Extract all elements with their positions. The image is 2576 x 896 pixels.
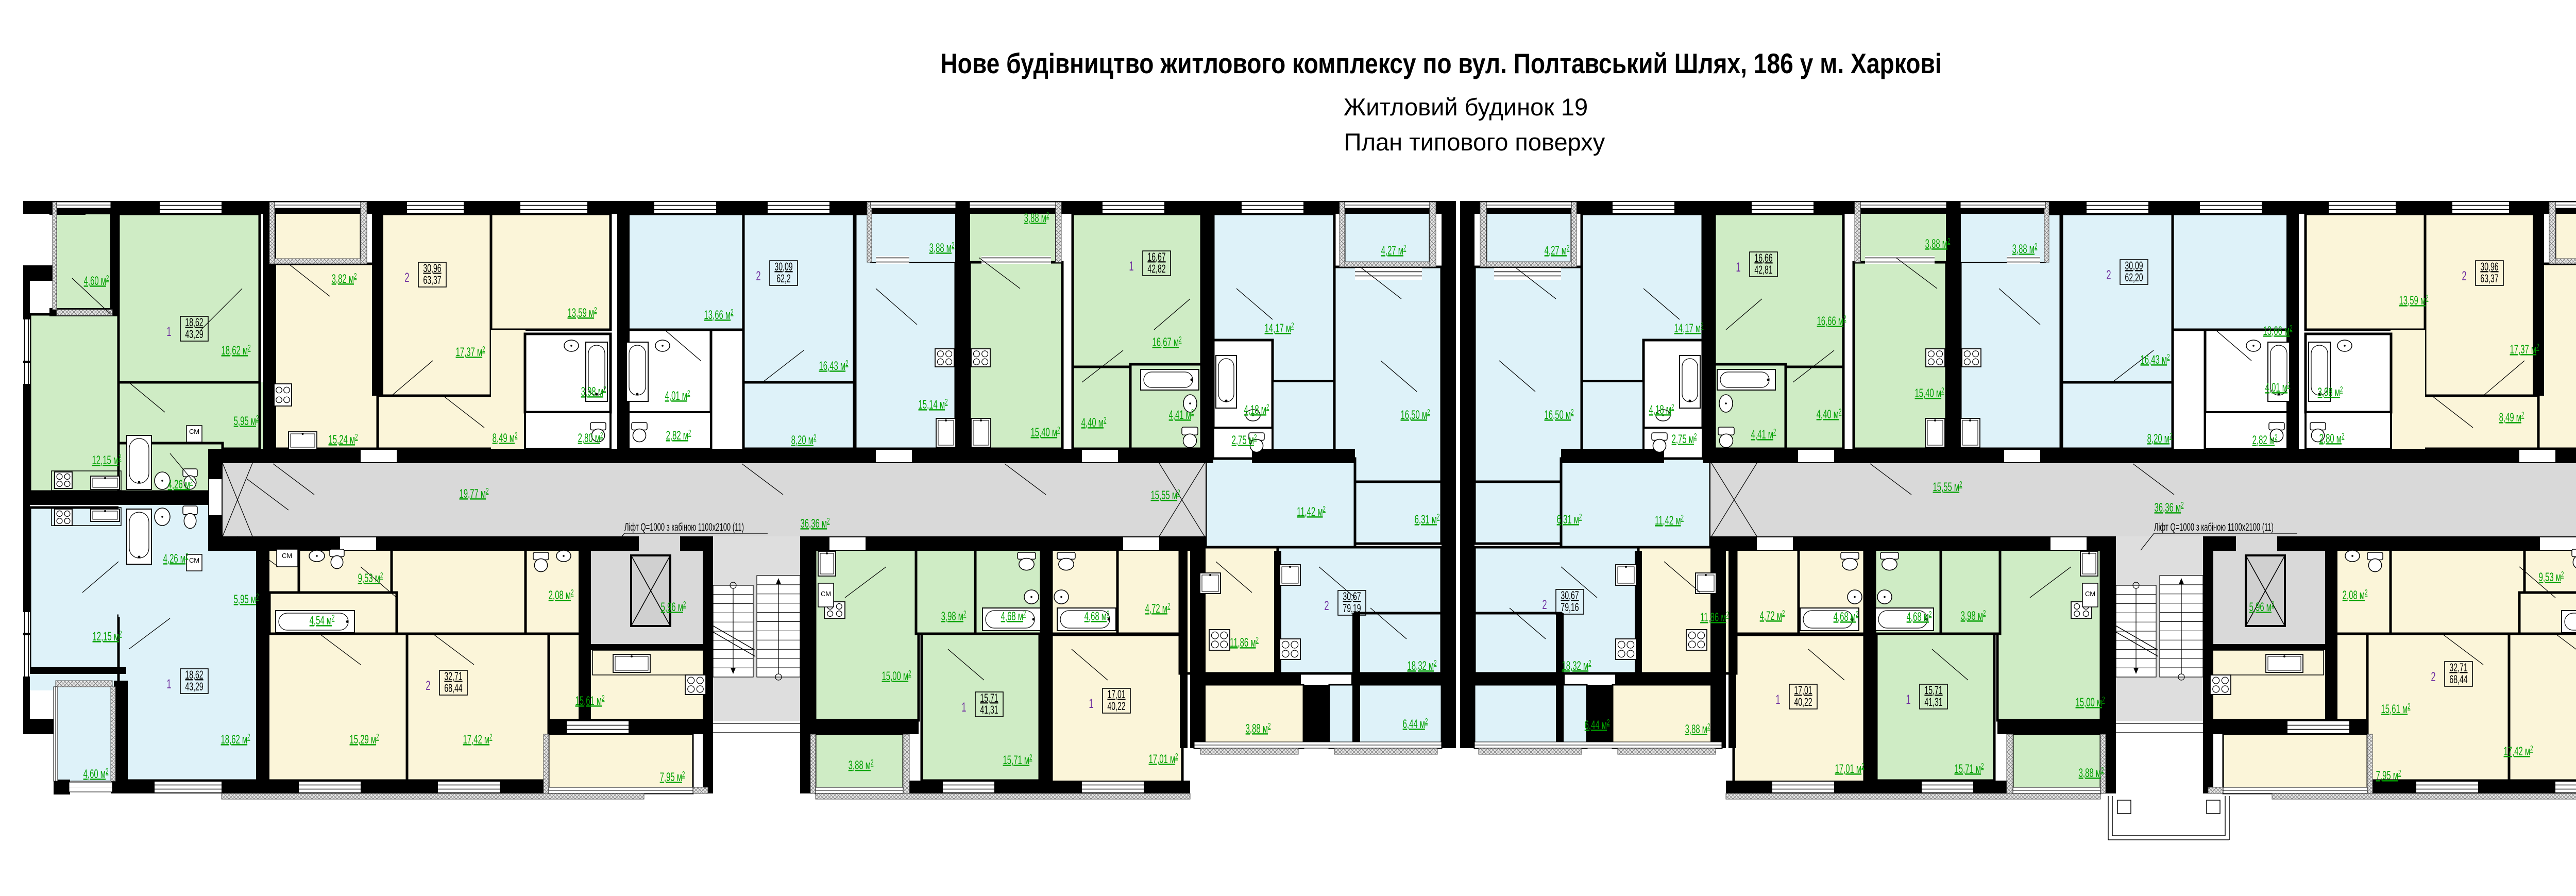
svg-text:15,40 м2: 15,40 м2 bbox=[1915, 386, 1944, 400]
svg-text:План типового поверху: План типового поверху bbox=[1344, 128, 1605, 156]
svg-text:18,62 м2: 18,62 м2 bbox=[221, 732, 250, 747]
svg-text:6,31 м2: 6,31 м2 bbox=[1415, 512, 1440, 527]
svg-text:4,01 м2: 4,01 м2 bbox=[2265, 380, 2291, 395]
svg-text:68,44: 68,44 bbox=[2449, 673, 2467, 686]
svg-text:42,81: 42,81 bbox=[1754, 263, 1772, 276]
svg-text:15,00 м2: 15,00 м2 bbox=[2076, 695, 2105, 709]
svg-text:2: 2 bbox=[404, 271, 409, 285]
svg-text:Нове будівництво житлового ком: Нове будівництво житлового комплексу по … bbox=[940, 47, 1941, 79]
svg-text:СМ: СМ bbox=[821, 590, 831, 598]
svg-text:16,66 м2: 16,66 м2 bbox=[1817, 314, 1846, 328]
svg-text:41,31: 41,31 bbox=[980, 703, 998, 716]
svg-text:6,44 м2: 6,44 м2 bbox=[1403, 717, 1428, 731]
svg-text:2,82 м2: 2,82 м2 bbox=[2252, 433, 2278, 447]
svg-text:1: 1 bbox=[1736, 261, 1740, 275]
svg-text:17,42 м2: 17,42 м2 bbox=[2504, 744, 2533, 758]
svg-text:3,88 м2: 3,88 м2 bbox=[1685, 722, 1710, 736]
svg-text:15,71 м2: 15,71 м2 bbox=[1955, 762, 1984, 776]
svg-text:3,88 м2: 3,88 м2 bbox=[2079, 766, 2104, 780]
svg-text:2,75 м2: 2,75 м2 bbox=[1672, 432, 1697, 446]
svg-text:4,18 м2: 4,18 м2 bbox=[1244, 402, 1269, 417]
svg-text:2,08 м2: 2,08 м2 bbox=[549, 588, 574, 602]
svg-text:68,44: 68,44 bbox=[444, 682, 462, 695]
svg-text:16,43 м2: 16,43 м2 bbox=[2141, 352, 2170, 367]
svg-text:17,01: 17,01 bbox=[1794, 684, 1812, 697]
svg-text:4,18 м2: 4,18 м2 bbox=[1649, 402, 1674, 417]
svg-text:4,68 м2: 4,68 м2 bbox=[1907, 610, 1932, 624]
svg-text:18,62 м2: 18,62 м2 bbox=[222, 343, 251, 358]
svg-text:11,86 м2: 11,86 м2 bbox=[1700, 610, 1729, 624]
svg-text:11,86 м2: 11,86 м2 bbox=[1230, 635, 1259, 650]
svg-text:4,40 м2: 4,40 м2 bbox=[1817, 407, 1842, 421]
svg-text:3,98 м2: 3,98 м2 bbox=[1961, 608, 1986, 623]
svg-text:3,98 м2: 3,98 м2 bbox=[2318, 385, 2343, 399]
svg-text:8,49 м2: 8,49 м2 bbox=[2499, 410, 2524, 425]
svg-text:3,88 м2: 3,88 м2 bbox=[1024, 211, 1049, 225]
svg-text:30,96: 30,96 bbox=[2480, 260, 2498, 273]
svg-text:15,61 м2: 15,61 м2 bbox=[575, 694, 605, 708]
svg-text:1: 1 bbox=[1089, 697, 1093, 711]
svg-text:40,22: 40,22 bbox=[1794, 696, 1812, 708]
svg-text:3,82 м2: 3,82 м2 bbox=[332, 272, 357, 286]
svg-text:2: 2 bbox=[1324, 599, 1329, 613]
svg-text:15,40 м2: 15,40 м2 bbox=[1031, 425, 1060, 439]
svg-text:3,98 м2: 3,98 м2 bbox=[941, 609, 967, 623]
svg-text:15,29 м2: 15,29 м2 bbox=[350, 732, 379, 747]
svg-text:16,66: 16,66 bbox=[1754, 251, 1772, 264]
svg-text:30,09: 30,09 bbox=[2125, 259, 2143, 272]
svg-text:9,53 м2: 9,53 м2 bbox=[2539, 570, 2564, 584]
svg-text:16,50 м2: 16,50 м2 bbox=[1545, 408, 1574, 422]
svg-text:4,41 м2: 4,41 м2 bbox=[1751, 427, 1776, 442]
svg-text:4,60 м2: 4,60 м2 bbox=[83, 767, 109, 781]
svg-text:СМ: СМ bbox=[2085, 590, 2095, 598]
svg-text:15,00 м2: 15,00 м2 bbox=[882, 669, 911, 683]
svg-text:3,88 м2: 3,88 м2 bbox=[1925, 236, 1951, 251]
svg-text:17,42 м2: 17,42 м2 bbox=[463, 732, 493, 747]
svg-text:1: 1 bbox=[1775, 693, 1780, 707]
svg-text:2,80 м2: 2,80 м2 bbox=[578, 431, 603, 445]
svg-text:5,96 м2: 5,96 м2 bbox=[2249, 600, 2275, 614]
svg-text:3,88 м2: 3,88 м2 bbox=[1246, 721, 1271, 736]
svg-text:15,14 м2: 15,14 м2 bbox=[919, 397, 948, 412]
svg-text:43,29: 43,29 bbox=[185, 328, 203, 341]
svg-text:13,66 м2: 13,66 м2 bbox=[704, 308, 734, 322]
svg-text:2: 2 bbox=[756, 269, 760, 283]
svg-text:4,26 м2: 4,26 м2 bbox=[168, 477, 193, 492]
svg-text:15,71: 15,71 bbox=[1924, 684, 1942, 697]
svg-text:Ліфт Q=1000 з кабіною 1100х210: Ліфт Q=1000 з кабіною 1100х2100 (11) bbox=[624, 521, 744, 533]
svg-text:1: 1 bbox=[166, 325, 171, 339]
svg-text:6,31 м2: 6,31 м2 bbox=[1557, 512, 1582, 527]
svg-text:18,32 м2: 18,32 м2 bbox=[1408, 658, 1437, 673]
svg-text:4,27 м2: 4,27 м2 bbox=[1545, 243, 1570, 258]
svg-text:40,22: 40,22 bbox=[1107, 700, 1125, 713]
svg-text:2,80 м2: 2,80 м2 bbox=[2319, 431, 2345, 446]
svg-text:3,88 м2: 3,88 м2 bbox=[2012, 242, 2038, 256]
svg-text:4,72 м2: 4,72 м2 bbox=[1145, 601, 1171, 616]
svg-text:7,95 м2: 7,95 м2 bbox=[2376, 768, 2401, 783]
svg-text:15,71 м2: 15,71 м2 bbox=[1003, 753, 1032, 767]
svg-text:9,53 м2: 9,53 м2 bbox=[358, 571, 383, 585]
svg-text:18,62: 18,62 bbox=[185, 316, 203, 329]
svg-text:2,82 м2: 2,82 м2 bbox=[666, 428, 691, 443]
svg-text:1: 1 bbox=[166, 678, 171, 691]
svg-text:30,96: 30,96 bbox=[423, 262, 441, 275]
svg-text:12,15 м2: 12,15 м2 bbox=[93, 629, 122, 644]
svg-text:16,43 м2: 16,43 м2 bbox=[819, 359, 849, 373]
svg-text:15,61 м2: 15,61 м2 bbox=[2381, 702, 2411, 716]
svg-text:42,82: 42,82 bbox=[1147, 262, 1165, 275]
svg-text:3,88 м2: 3,88 м2 bbox=[929, 241, 955, 255]
svg-text:4,72 м2: 4,72 м2 bbox=[1760, 608, 1785, 623]
svg-text:13,59 м2: 13,59 м2 bbox=[2399, 293, 2429, 308]
svg-text:14,17 м2: 14,17 м2 bbox=[1674, 321, 1704, 335]
svg-text:1: 1 bbox=[1129, 260, 1133, 274]
svg-text:5,96 м2: 5,96 м2 bbox=[661, 600, 686, 614]
svg-text:17,37 м2: 17,37 м2 bbox=[456, 345, 485, 359]
svg-text:Житловий будинок 19: Житловий будинок 19 bbox=[1344, 93, 1588, 121]
svg-text:4,60 м2: 4,60 м2 bbox=[84, 274, 109, 288]
svg-text:18,32 м2: 18,32 м2 bbox=[1562, 658, 1591, 673]
svg-text:8,20 м2: 8,20 м2 bbox=[2147, 431, 2173, 446]
svg-text:4,68 м2: 4,68 м2 bbox=[1001, 609, 1026, 623]
svg-text:4,54 м2: 4,54 м2 bbox=[310, 613, 335, 628]
svg-text:63,37: 63,37 bbox=[2480, 272, 2498, 285]
svg-text:15,55 м2: 15,55 м2 bbox=[1151, 488, 1180, 502]
svg-text:1: 1 bbox=[961, 701, 966, 715]
svg-text:СМ: СМ bbox=[282, 552, 292, 560]
svg-text:43,29: 43,29 bbox=[185, 680, 203, 693]
svg-text:СМ: СМ bbox=[189, 428, 199, 435]
svg-text:15,71: 15,71 bbox=[980, 691, 998, 704]
svg-text:4,68 м2: 4,68 м2 bbox=[1834, 610, 1859, 624]
svg-text:13,59 м2: 13,59 м2 bbox=[568, 306, 597, 320]
svg-text:30,67: 30,67 bbox=[1561, 589, 1579, 602]
svg-text:2: 2 bbox=[1542, 598, 1547, 612]
svg-text:2,75 м2: 2,75 м2 bbox=[1232, 433, 1257, 447]
svg-text:5,95 м2: 5,95 м2 bbox=[234, 592, 259, 606]
svg-text:19,77 м2: 19,77 м2 bbox=[460, 486, 489, 501]
svg-text:17,37 м2: 17,37 м2 bbox=[2510, 342, 2539, 357]
svg-text:4,41 м2: 4,41 м2 bbox=[1169, 408, 1194, 422]
svg-text:12,15 м2: 12,15 м2 bbox=[92, 453, 122, 467]
svg-text:7,95 м2: 7,95 м2 bbox=[660, 770, 685, 784]
svg-text:16,67: 16,67 bbox=[1147, 250, 1165, 263]
svg-text:11,42 м2: 11,42 м2 bbox=[1297, 504, 1326, 519]
svg-text:11,42 м2: 11,42 м2 bbox=[1655, 513, 1684, 528]
svg-text:62,20: 62,20 bbox=[2125, 271, 2143, 284]
svg-text:17,01: 17,01 bbox=[1107, 688, 1125, 701]
svg-text:4,01 м2: 4,01 м2 bbox=[665, 388, 690, 403]
svg-text:4,68 м2: 4,68 м2 bbox=[1084, 609, 1110, 623]
svg-text:4,26 м2: 4,26 м2 bbox=[163, 551, 189, 566]
svg-text:2: 2 bbox=[2431, 670, 2435, 684]
svg-text:5,95 м2: 5,95 м2 bbox=[234, 414, 259, 428]
svg-text:8,20 м2: 8,20 м2 bbox=[791, 433, 817, 447]
svg-text:30,67: 30,67 bbox=[1343, 590, 1361, 603]
svg-text:30,09: 30,09 bbox=[774, 260, 792, 273]
svg-text:15,55 м2: 15,55 м2 bbox=[1933, 480, 1962, 494]
svg-text:13,66 м2: 13,66 м2 bbox=[2263, 324, 2293, 338]
svg-text:3,98 м2: 3,98 м2 bbox=[581, 384, 606, 399]
svg-text:Ліфт Q=1000 з кабіною 1100х210: Ліфт Q=1000 з кабіною 1100х2100 (11) bbox=[2154, 521, 2274, 533]
svg-text:15,24 м2: 15,24 м2 bbox=[329, 432, 358, 447]
svg-text:17,01 м2: 17,01 м2 bbox=[1835, 762, 1865, 776]
svg-text:41,31: 41,31 bbox=[1924, 696, 1942, 708]
svg-text:2: 2 bbox=[426, 679, 430, 693]
svg-text:16,50 м2: 16,50 м2 bbox=[1401, 408, 1430, 422]
svg-text:3,88 м2: 3,88 м2 bbox=[849, 758, 874, 772]
svg-text:18,62: 18,62 bbox=[185, 668, 203, 681]
svg-text:4,27 м2: 4,27 м2 bbox=[1381, 243, 1406, 258]
svg-text:32,71: 32,71 bbox=[444, 670, 462, 683]
svg-text:32,71: 32,71 bbox=[2449, 661, 2467, 674]
svg-text:16,67 м2: 16,67 м2 bbox=[1153, 335, 1182, 349]
svg-text:2,08 м2: 2,08 м2 bbox=[2343, 588, 2368, 602]
svg-text:4,40 м2: 4,40 м2 bbox=[1081, 415, 1107, 430]
svg-text:62,2: 62,2 bbox=[776, 272, 790, 285]
svg-text:1: 1 bbox=[1906, 693, 1910, 707]
svg-text:2: 2 bbox=[2106, 268, 2111, 282]
svg-text:6,44 м2: 6,44 м2 bbox=[1585, 718, 1610, 732]
svg-text:79,16: 79,16 bbox=[1561, 601, 1579, 614]
svg-text:36,36 м2: 36,36 м2 bbox=[2155, 500, 2184, 515]
svg-text:79,19: 79,19 bbox=[1343, 602, 1361, 615]
svg-text:2: 2 bbox=[2462, 269, 2466, 283]
svg-text:63,37: 63,37 bbox=[423, 274, 441, 286]
svg-text:14,17 м2: 14,17 м2 bbox=[1265, 321, 1294, 335]
svg-text:17,01 м2: 17,01 м2 bbox=[1149, 752, 1178, 766]
svg-text:8,49 м2: 8,49 м2 bbox=[493, 431, 518, 445]
svg-text:СМ: СМ bbox=[189, 556, 199, 564]
svg-text:36,36 м2: 36,36 м2 bbox=[801, 516, 830, 531]
